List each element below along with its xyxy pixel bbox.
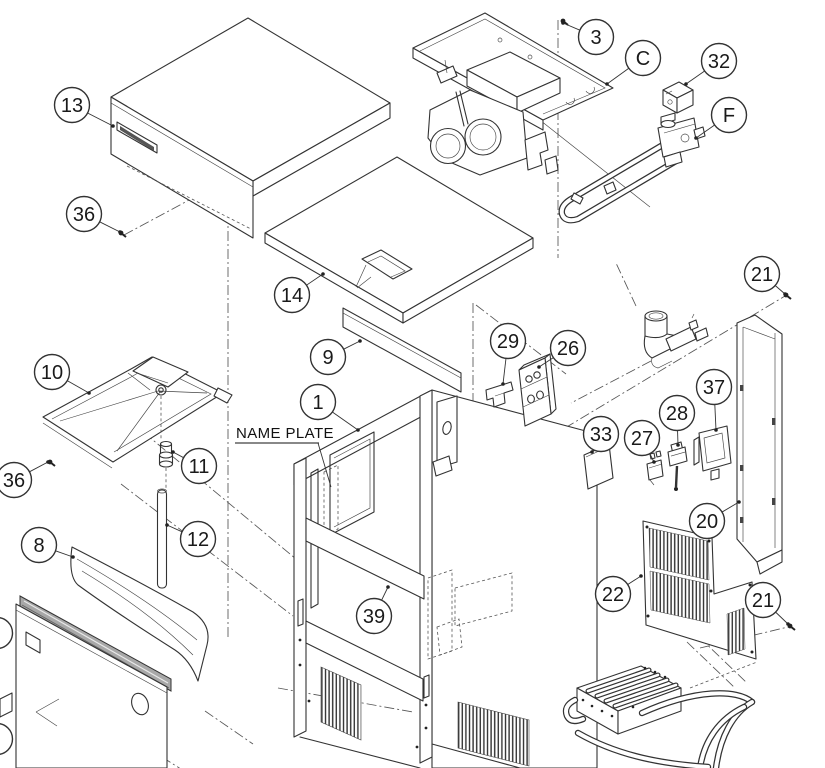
diagram-canvas: NAME PLATE 13363C32F14912926211011361283…: [0, 0, 825, 768]
callout-label: 9: [322, 347, 333, 369]
callout-label: 1: [312, 392, 323, 414]
callout-label: 10: [41, 362, 63, 384]
callout-14: 14: [275, 272, 325, 312]
callout-36-top: 36: [67, 197, 122, 234]
callout-21-top: 21: [745, 257, 787, 296]
callout-22: 22: [596, 574, 643, 611]
callout-balloon-clipped: [0, 724, 13, 755]
callout-label: 21: [752, 590, 774, 612]
part-standpipe-tube: [158, 489, 167, 588]
callout-label: 36: [3, 470, 25, 492]
part-micro-switch: [647, 451, 663, 485]
part-cabinet-frame: [294, 390, 597, 768]
callout-label: 28: [666, 403, 688, 425]
callout-9: 9: [311, 339, 362, 374]
callout-label: 29: [497, 331, 519, 353]
callout-label: 13: [61, 95, 83, 117]
callout-13: 13: [55, 88, 115, 128]
callout-3: 3: [561, 20, 613, 55]
callout-label: 32: [708, 51, 730, 73]
callout-label: 26: [557, 338, 579, 360]
callout-36-left: 36: [0, 460, 50, 497]
callout-26: 26: [537, 331, 585, 369]
part-switch-bracket: [694, 426, 731, 480]
callout-label: C: [636, 48, 650, 70]
part-toggle-switch: [668, 442, 687, 491]
callout-label: 21: [751, 264, 773, 286]
callout-C: C: [605, 41, 660, 86]
cabinet-front-louver: [321, 667, 361, 740]
callout-label: 3: [590, 27, 601, 49]
callout-37: 37: [697, 370, 732, 432]
callout-label: 36: [73, 204, 95, 226]
callout-label: 33: [590, 424, 612, 446]
callout-F: F: [694, 98, 746, 140]
callout-label: 22: [602, 584, 624, 606]
callout-12: 12: [165, 522, 215, 557]
callout-10: 10: [35, 355, 91, 395]
part-side-panel: [737, 315, 782, 574]
callout-11: 11: [171, 449, 216, 484]
part-relay-box: [663, 82, 693, 113]
callout-label: 12: [187, 529, 209, 551]
callout-28: 28: [660, 396, 695, 447]
part-mount-plate: [519, 354, 556, 426]
callout-label: 39: [363, 606, 385, 628]
name-plate-label: NAME PLATE: [236, 425, 334, 442]
callout-balloon-clipped: [0, 618, 13, 649]
part-drain-elbow: [644, 311, 708, 368]
callout-label: F: [723, 105, 735, 127]
callout-label: 14: [281, 285, 303, 307]
part-water-valve: [562, 113, 705, 220]
callout-label: 37: [703, 377, 725, 399]
callout-label: 8: [33, 535, 44, 557]
callout-label: 11: [189, 456, 210, 478]
exploded-parts-diagram: NAME PLATE 13363C32F14912926211011361283…: [0, 0, 825, 768]
callout-label: 27: [631, 428, 653, 450]
callout-32: 32: [684, 44, 736, 86]
callout-20: 20: [690, 500, 741, 538]
part-standpipe-fitting: [160, 442, 173, 489]
callout-8: 8: [22, 528, 75, 563]
callout-39: 39: [357, 585, 392, 633]
part-z-bracket: [486, 382, 513, 407]
callout-label: 20: [696, 511, 718, 533]
